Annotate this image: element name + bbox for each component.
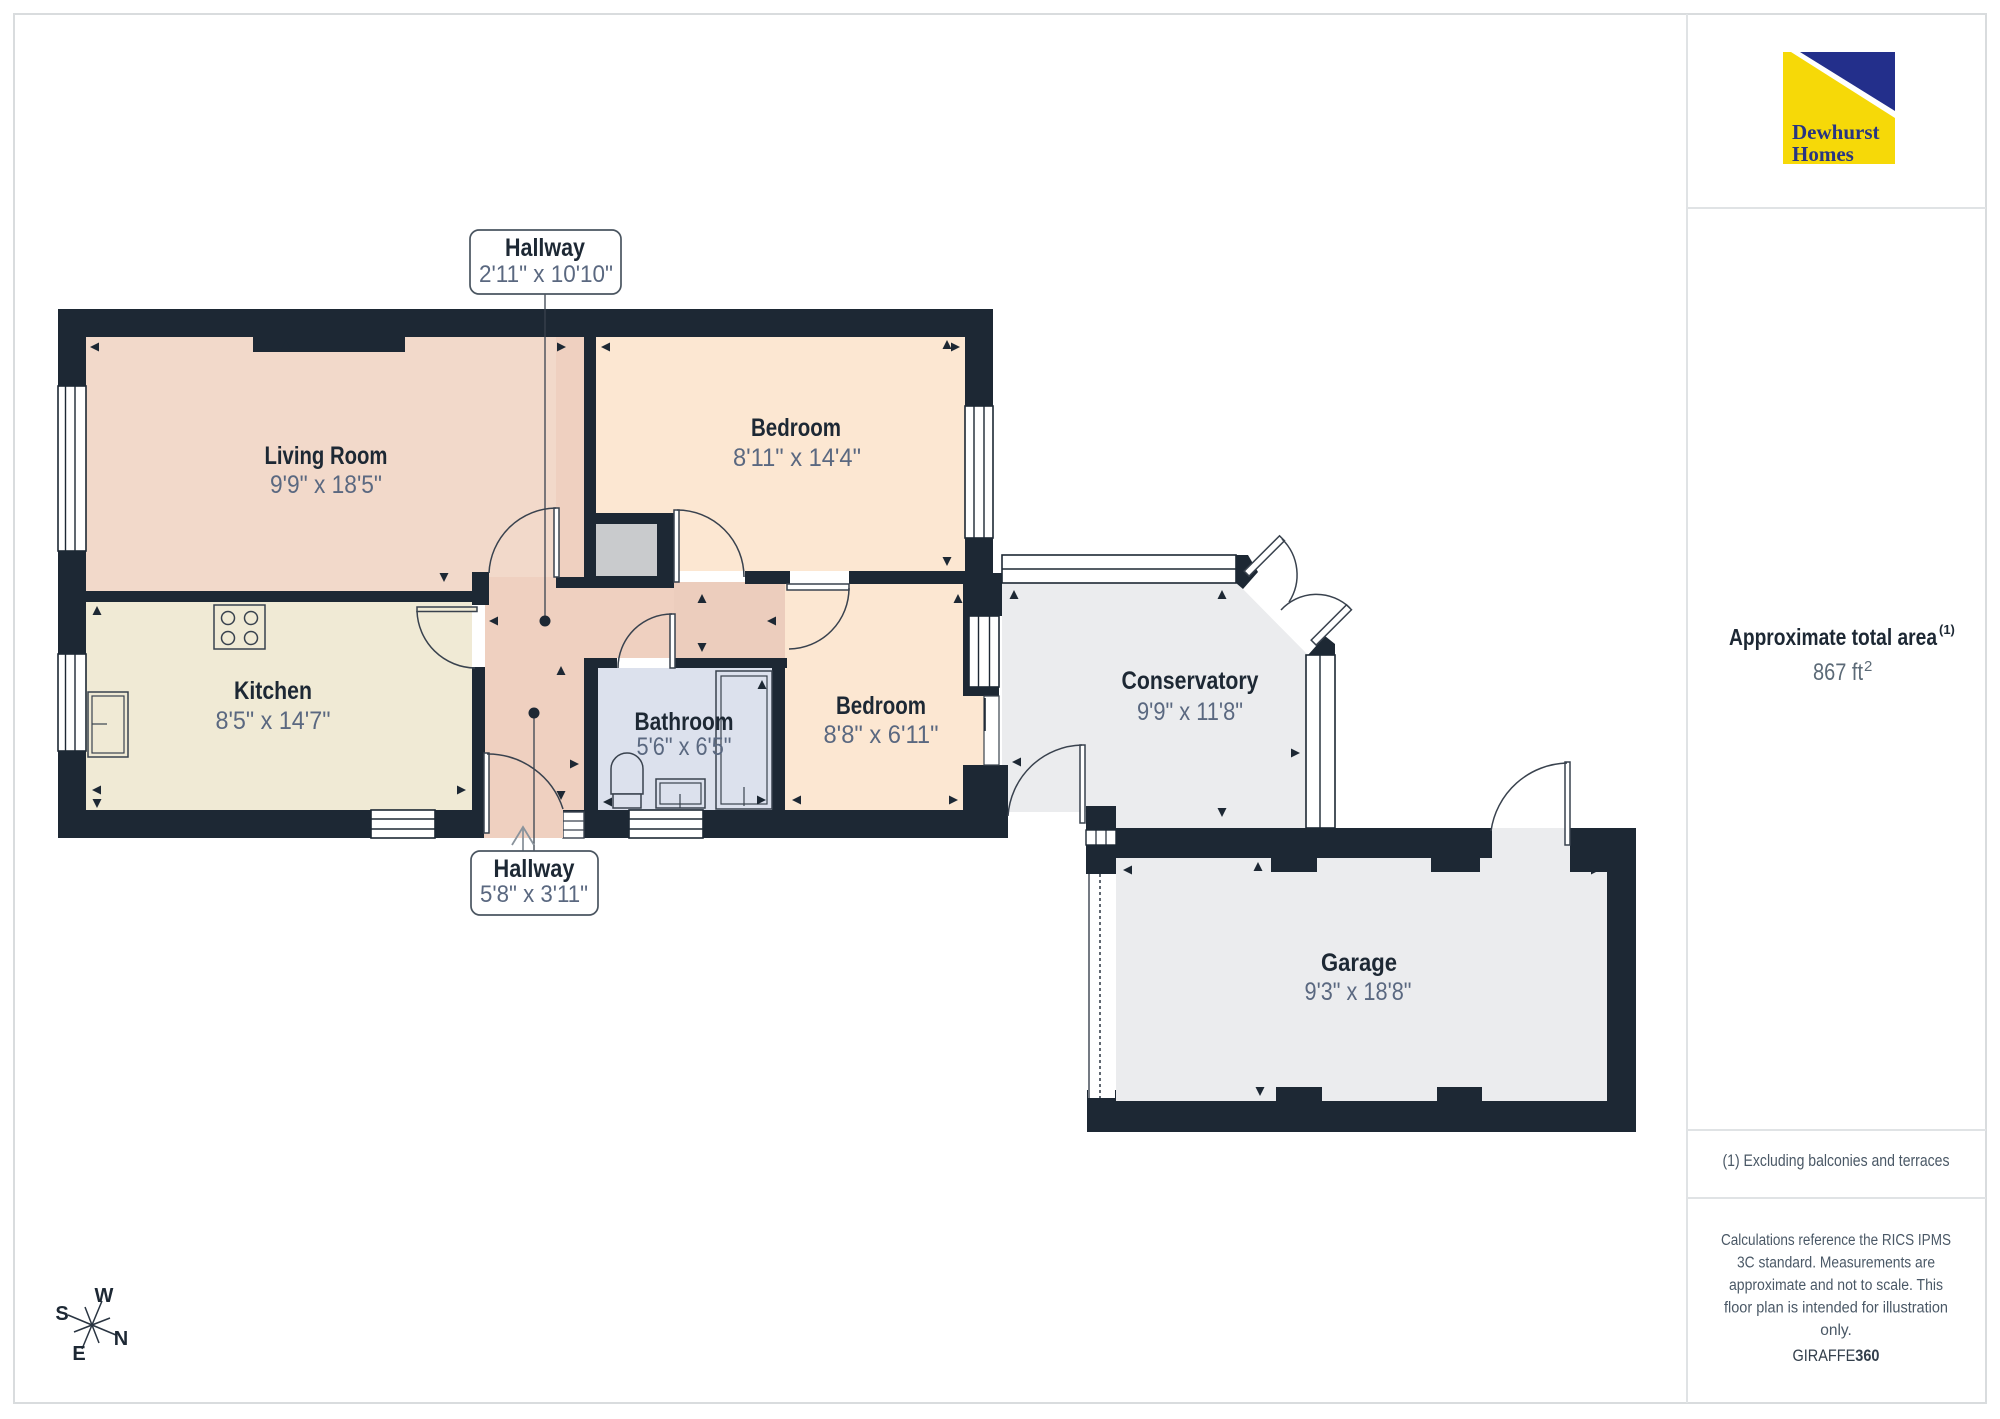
svg-text:Conservatory: Conservatory — [1122, 667, 1259, 695]
svg-text:9'9" x 11'8": 9'9" x 11'8" — [1137, 698, 1243, 726]
svg-text:(1) Excluding balconies and te: (1) Excluding balconies and terraces — [1723, 1151, 1950, 1170]
svg-text:Hallway: Hallway — [494, 855, 575, 883]
svg-text:Hallway: Hallway — [505, 234, 585, 262]
svg-text:S: S — [55, 1303, 68, 1325]
svg-text:Dewhurst: Dewhurst — [1792, 120, 1880, 144]
svg-text:867 ft: 867 ft — [1813, 659, 1863, 686]
svg-text:approximate and not to scale.: approximate and not to scale. This — [1729, 1277, 1943, 1294]
svg-text:Living Room: Living Room — [265, 442, 388, 470]
svg-text:Bathroom: Bathroom — [635, 708, 734, 736]
svg-text:Bedroom: Bedroom — [751, 414, 841, 442]
svg-text:Bedroom: Bedroom — [836, 692, 926, 720]
svg-text:W: W — [95, 1285, 114, 1307]
svg-text:8'8" x 6'11": 8'8" x 6'11" — [824, 721, 939, 749]
svg-text:5'6" x 6'5": 5'6" x 6'5" — [637, 733, 732, 761]
svg-text:Approximate total area: Approximate total area — [1729, 624, 1937, 650]
svg-text:8'5" x 14'7": 8'5" x 14'7" — [216, 707, 331, 735]
svg-text:Homes: Homes — [1792, 142, 1854, 166]
svg-text:only.: only. — [1820, 1322, 1852, 1339]
svg-text:Garage: Garage — [1321, 949, 1397, 977]
svg-text:9'9" x 18'5": 9'9" x 18'5" — [270, 471, 382, 499]
svg-text:E: E — [72, 1343, 85, 1365]
svg-text:(1): (1) — [1939, 622, 1955, 637]
svg-text:9'3" x 18'8": 9'3" x 18'8" — [1305, 978, 1412, 1006]
svg-text:Kitchen: Kitchen — [234, 677, 312, 705]
svg-text:N: N — [114, 1328, 128, 1350]
svg-text:floor plan is intended for ill: floor plan is intended for illustration — [1724, 1300, 1948, 1317]
svg-text:2: 2 — [1864, 658, 1872, 675]
svg-text:Calculations reference the RIC: Calculations reference the RICS IPMS — [1721, 1232, 1951, 1249]
svg-text:8'11" x 14'4": 8'11" x 14'4" — [733, 444, 861, 472]
svg-text:5'8" x 3'11": 5'8" x 3'11" — [480, 881, 588, 908]
svg-text:2'11" x 10'10": 2'11" x 10'10" — [479, 261, 613, 288]
svg-text:GIRAFFE360: GIRAFFE360 — [1793, 1346, 1880, 1365]
svg-text:3C standard. Measurements are: 3C standard. Measurements are — [1737, 1255, 1935, 1272]
